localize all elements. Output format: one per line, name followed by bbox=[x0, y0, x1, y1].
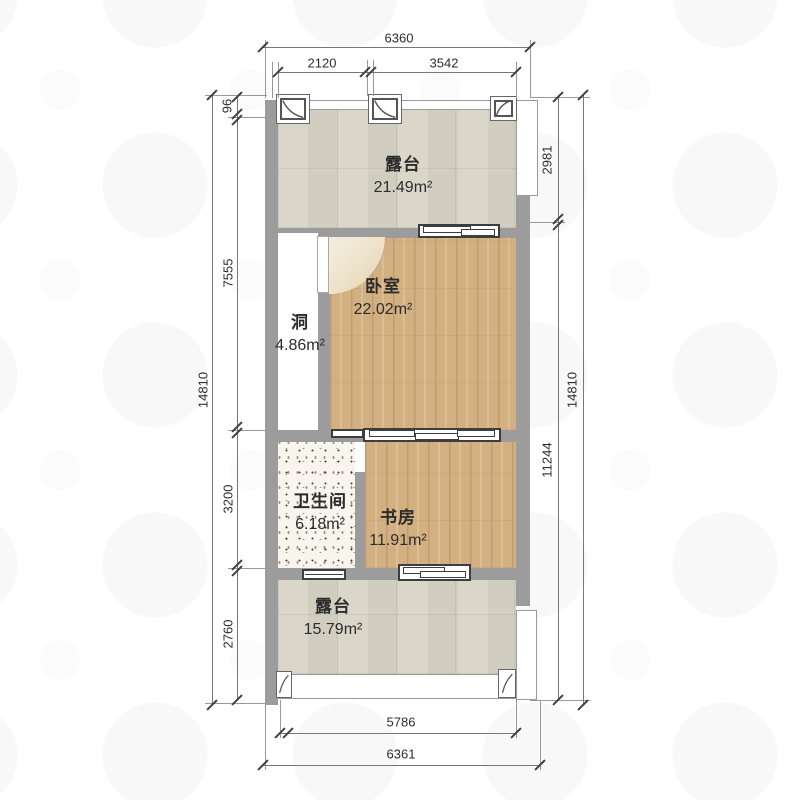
extension-line bbox=[540, 700, 541, 770]
extension-line bbox=[367, 60, 368, 96]
dim-text-left-b: 7555 bbox=[221, 259, 236, 288]
floor-plan-page: { "plan": { "rooms": [ {"id": "terrace-t… bbox=[0, 0, 800, 800]
extension-line bbox=[265, 40, 266, 98]
dim-line-right-total bbox=[583, 95, 584, 705]
extension-line bbox=[373, 60, 374, 96]
dim-text-left-d: 2760 bbox=[221, 620, 236, 649]
dim-text-bottom-inner: 5786 bbox=[387, 715, 416, 730]
dim-text-left-c: 3200 bbox=[221, 485, 236, 514]
dim-text-top-total: 6360 bbox=[385, 31, 414, 46]
dim-line-bottom-inner bbox=[280, 733, 516, 734]
extension-line bbox=[530, 700, 590, 701]
extension-line bbox=[516, 62, 517, 98]
extension-line bbox=[530, 40, 531, 98]
dim-line-top-total bbox=[263, 47, 530, 48]
dim-line-top-segments bbox=[278, 72, 516, 73]
dim-text-right-a: 2981 bbox=[540, 146, 555, 175]
dim-text-top-b: 3542 bbox=[430, 56, 459, 71]
extension-line bbox=[278, 62, 279, 98]
dim-line-left-segments bbox=[237, 97, 238, 700]
dim-text-left-a: 96 bbox=[220, 99, 235, 113]
extension-line bbox=[272, 62, 273, 98]
extension-line bbox=[228, 568, 278, 569]
dim-text-left-total: 14810 bbox=[196, 372, 211, 408]
dimension-layer: 6360 2120 3542 14810 96 7555 3200 2760 2… bbox=[0, 0, 800, 800]
dim-text-top-a: 2120 bbox=[308, 56, 337, 71]
dim-line-left-total bbox=[212, 95, 213, 705]
dim-line-right-segments bbox=[558, 97, 559, 700]
dim-text-right-b: 11244 bbox=[540, 442, 555, 477]
extension-line bbox=[228, 430, 278, 431]
dim-text-bottom-total: 6361 bbox=[387, 747, 416, 762]
dim-line-bottom-total bbox=[263, 765, 540, 766]
dim-text-right-total: 14810 bbox=[565, 372, 580, 408]
